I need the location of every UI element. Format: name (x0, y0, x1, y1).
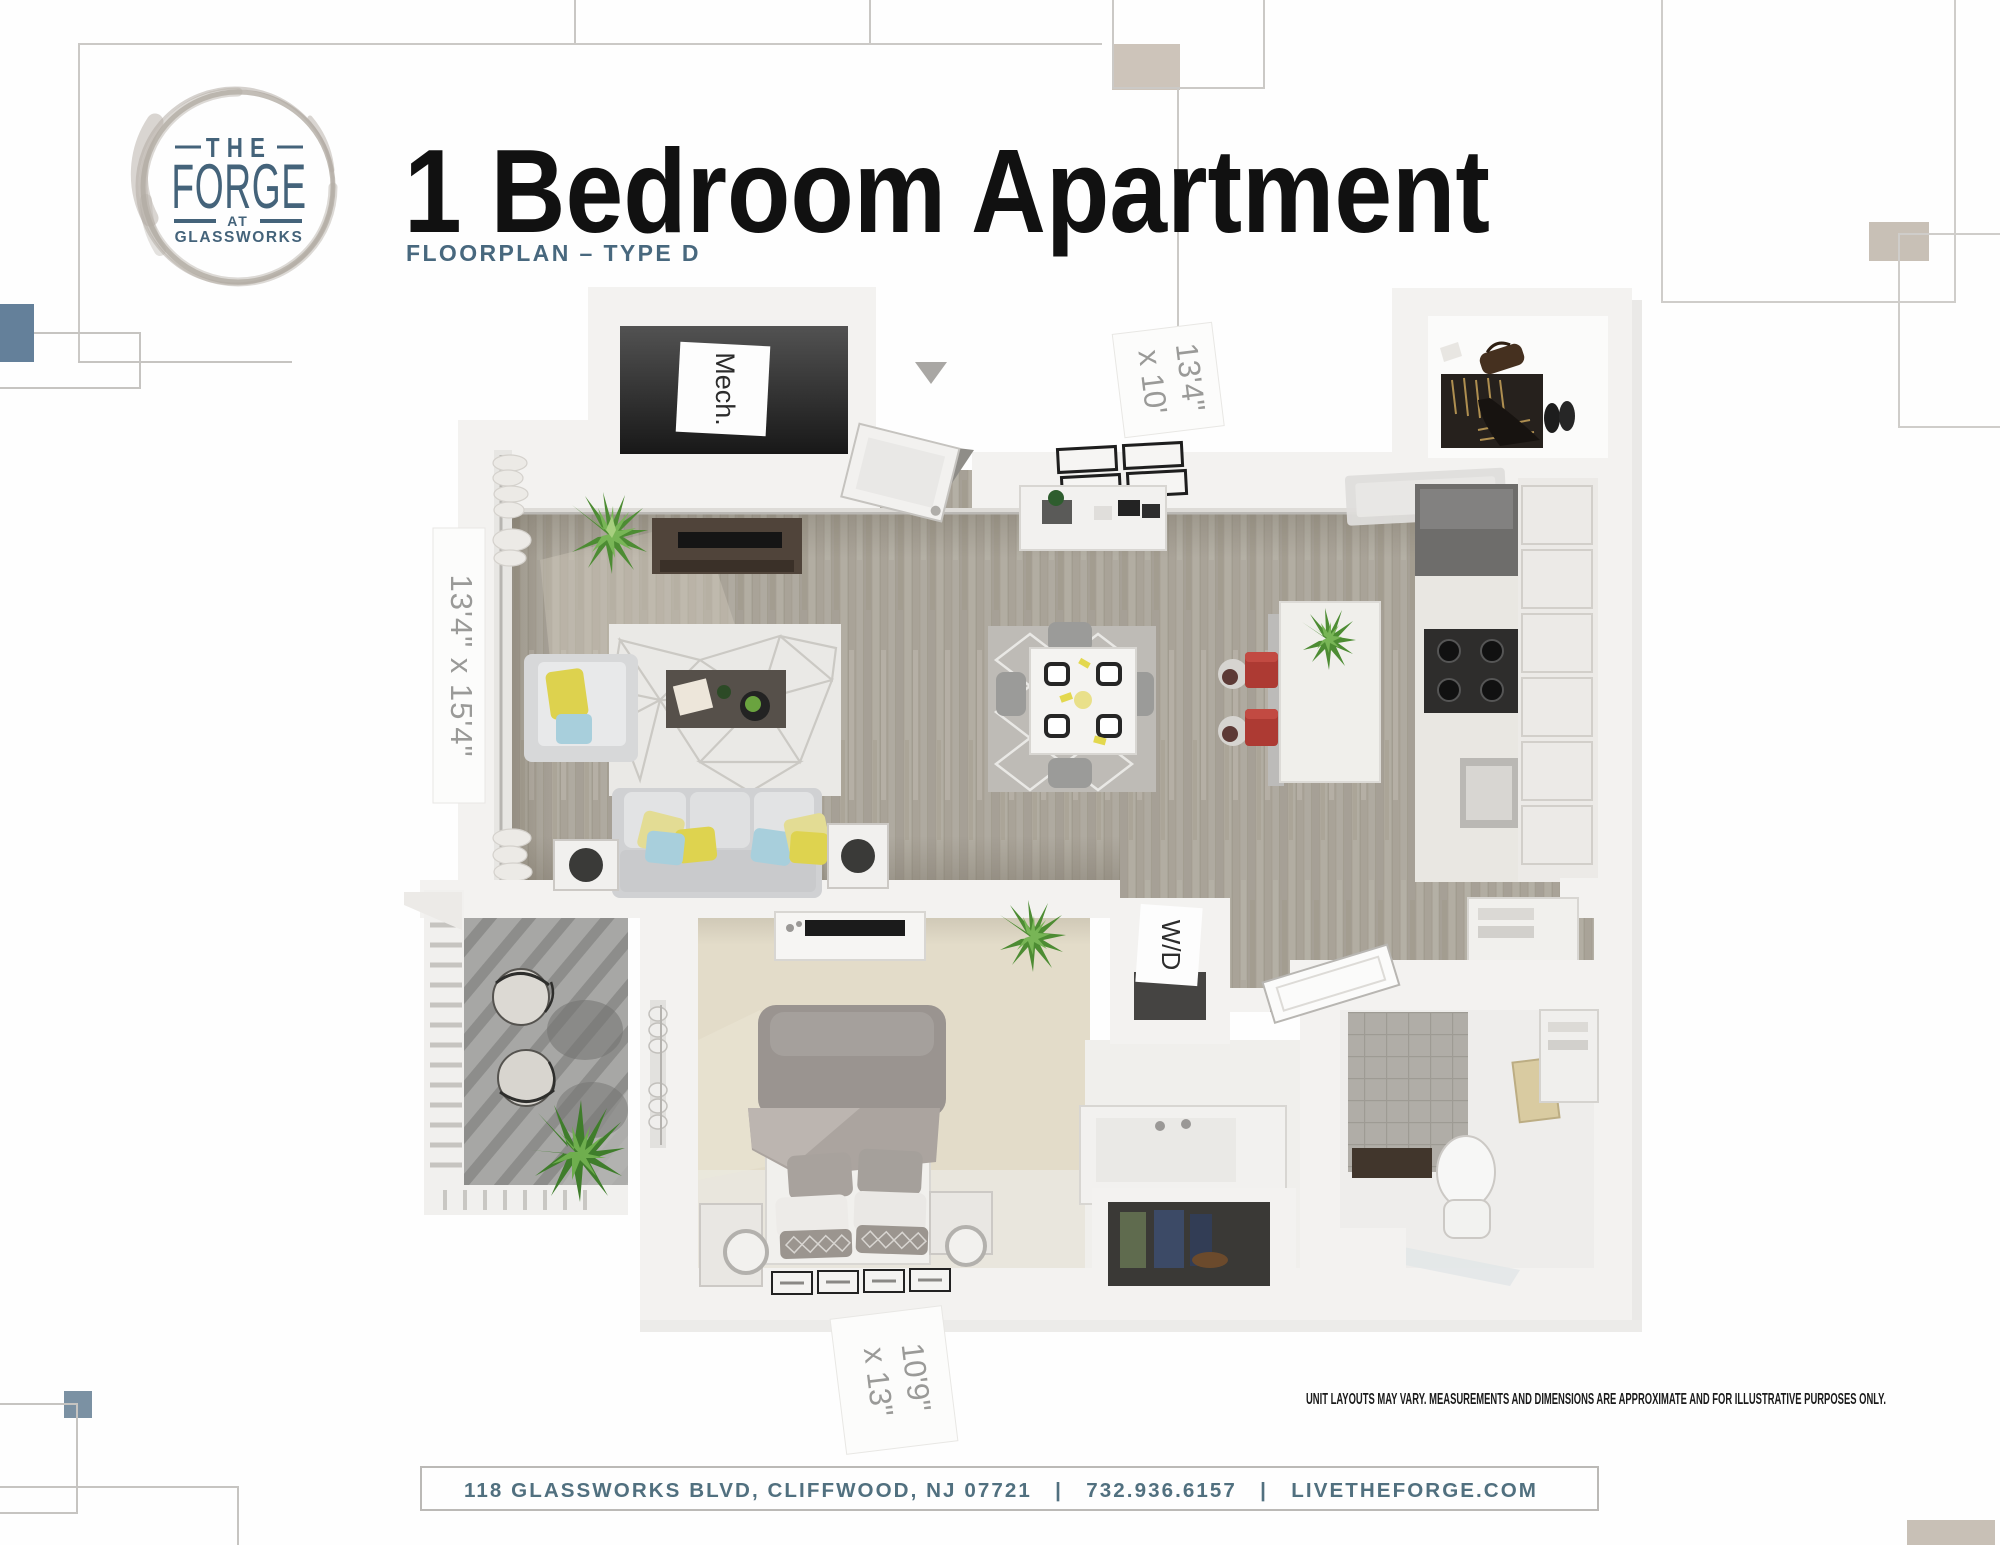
svg-text:FORGE: FORGE (171, 151, 306, 222)
svg-text:1 Bedroom Apartment: 1 Bedroom Apartment (404, 125, 1490, 258)
svg-text:UNIT LAYOUTS MAY VARY. MEASURE: UNIT LAYOUTS MAY VARY. MEASUREMENTS AND … (1306, 1391, 1886, 1408)
svg-text:118 GLASSWORKS BLVD, CLIFFWOOD: 118 GLASSWORKS BLVD, CLIFFWOOD, NJ 07721… (464, 1480, 1538, 1502)
svg-text:Mech.: Mech. (710, 352, 740, 426)
svg-text:GLASSWORKS: GLASSWORKS (175, 229, 304, 246)
svg-text:W/D: W/D (1156, 920, 1186, 971)
svg-text:FLOORPLAN – TYPE D: FLOORPLAN – TYPE D (406, 240, 701, 266)
svg-text:13'4" x 15'4": 13'4" x 15'4" (444, 574, 479, 757)
svg-text:AT: AT (227, 213, 249, 229)
